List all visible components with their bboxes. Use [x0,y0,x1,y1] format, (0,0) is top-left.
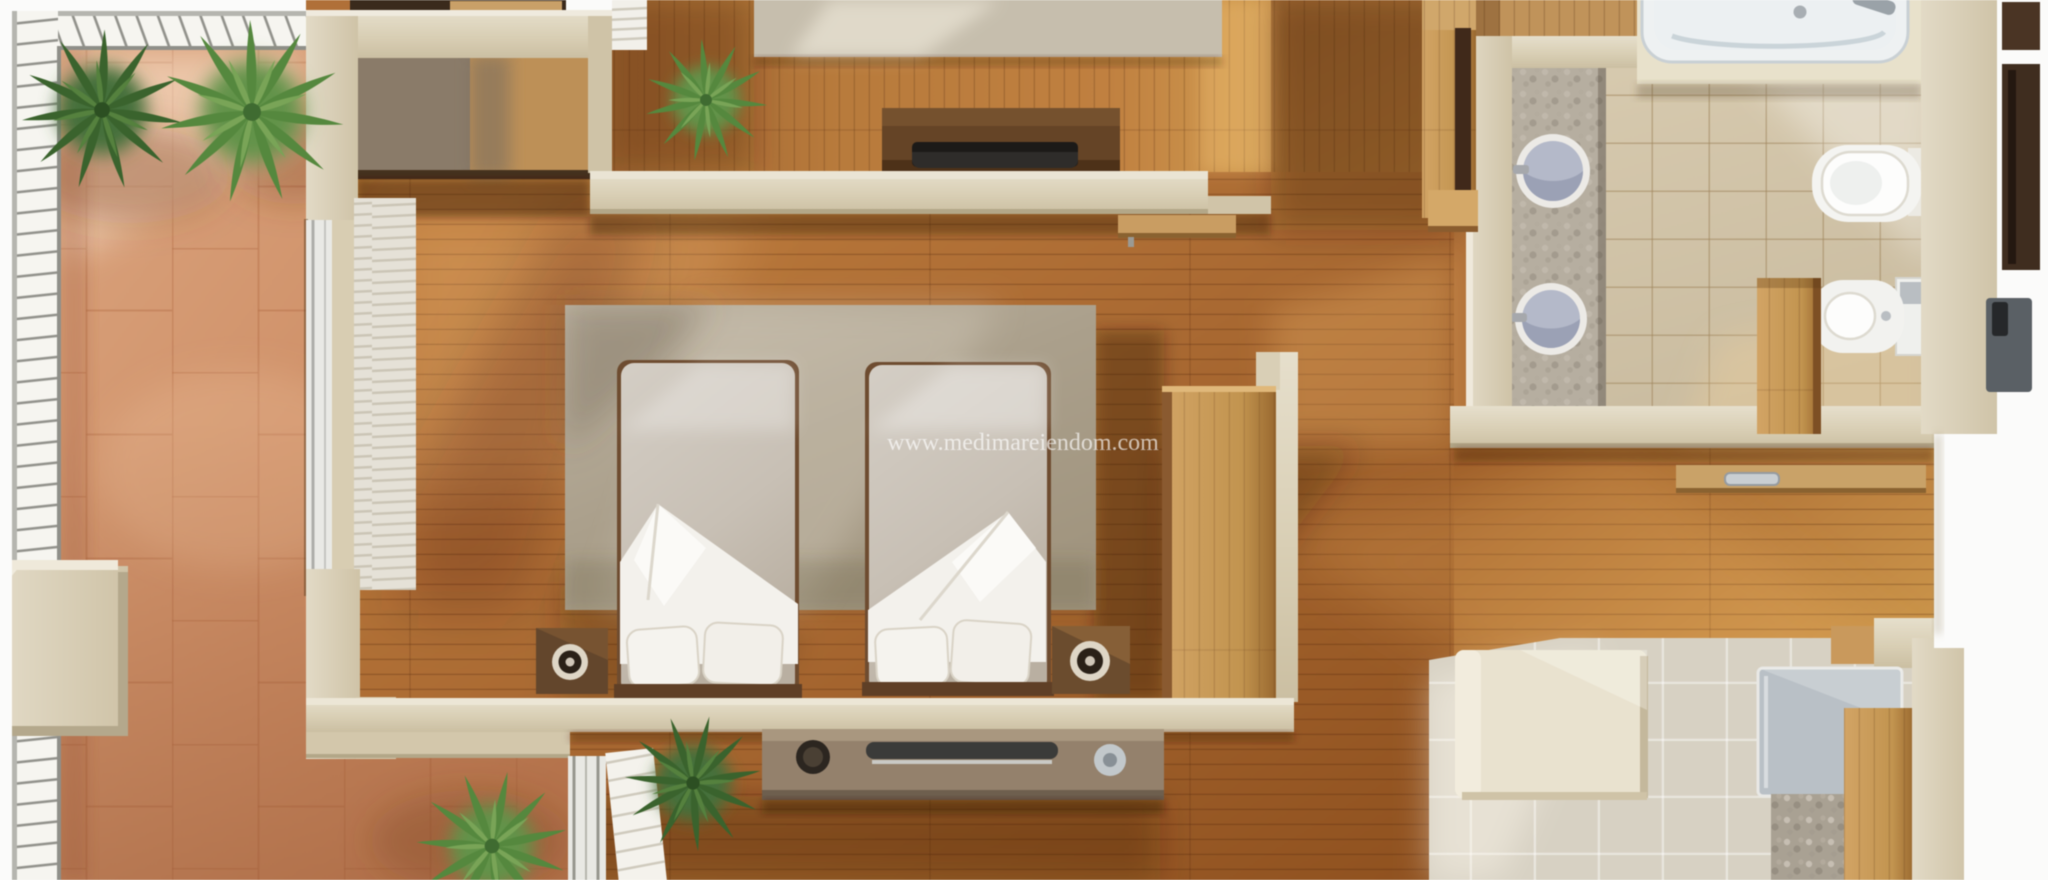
svg-text:www.medimareiendom.com: www.medimareiendom.com [887,430,1159,456]
